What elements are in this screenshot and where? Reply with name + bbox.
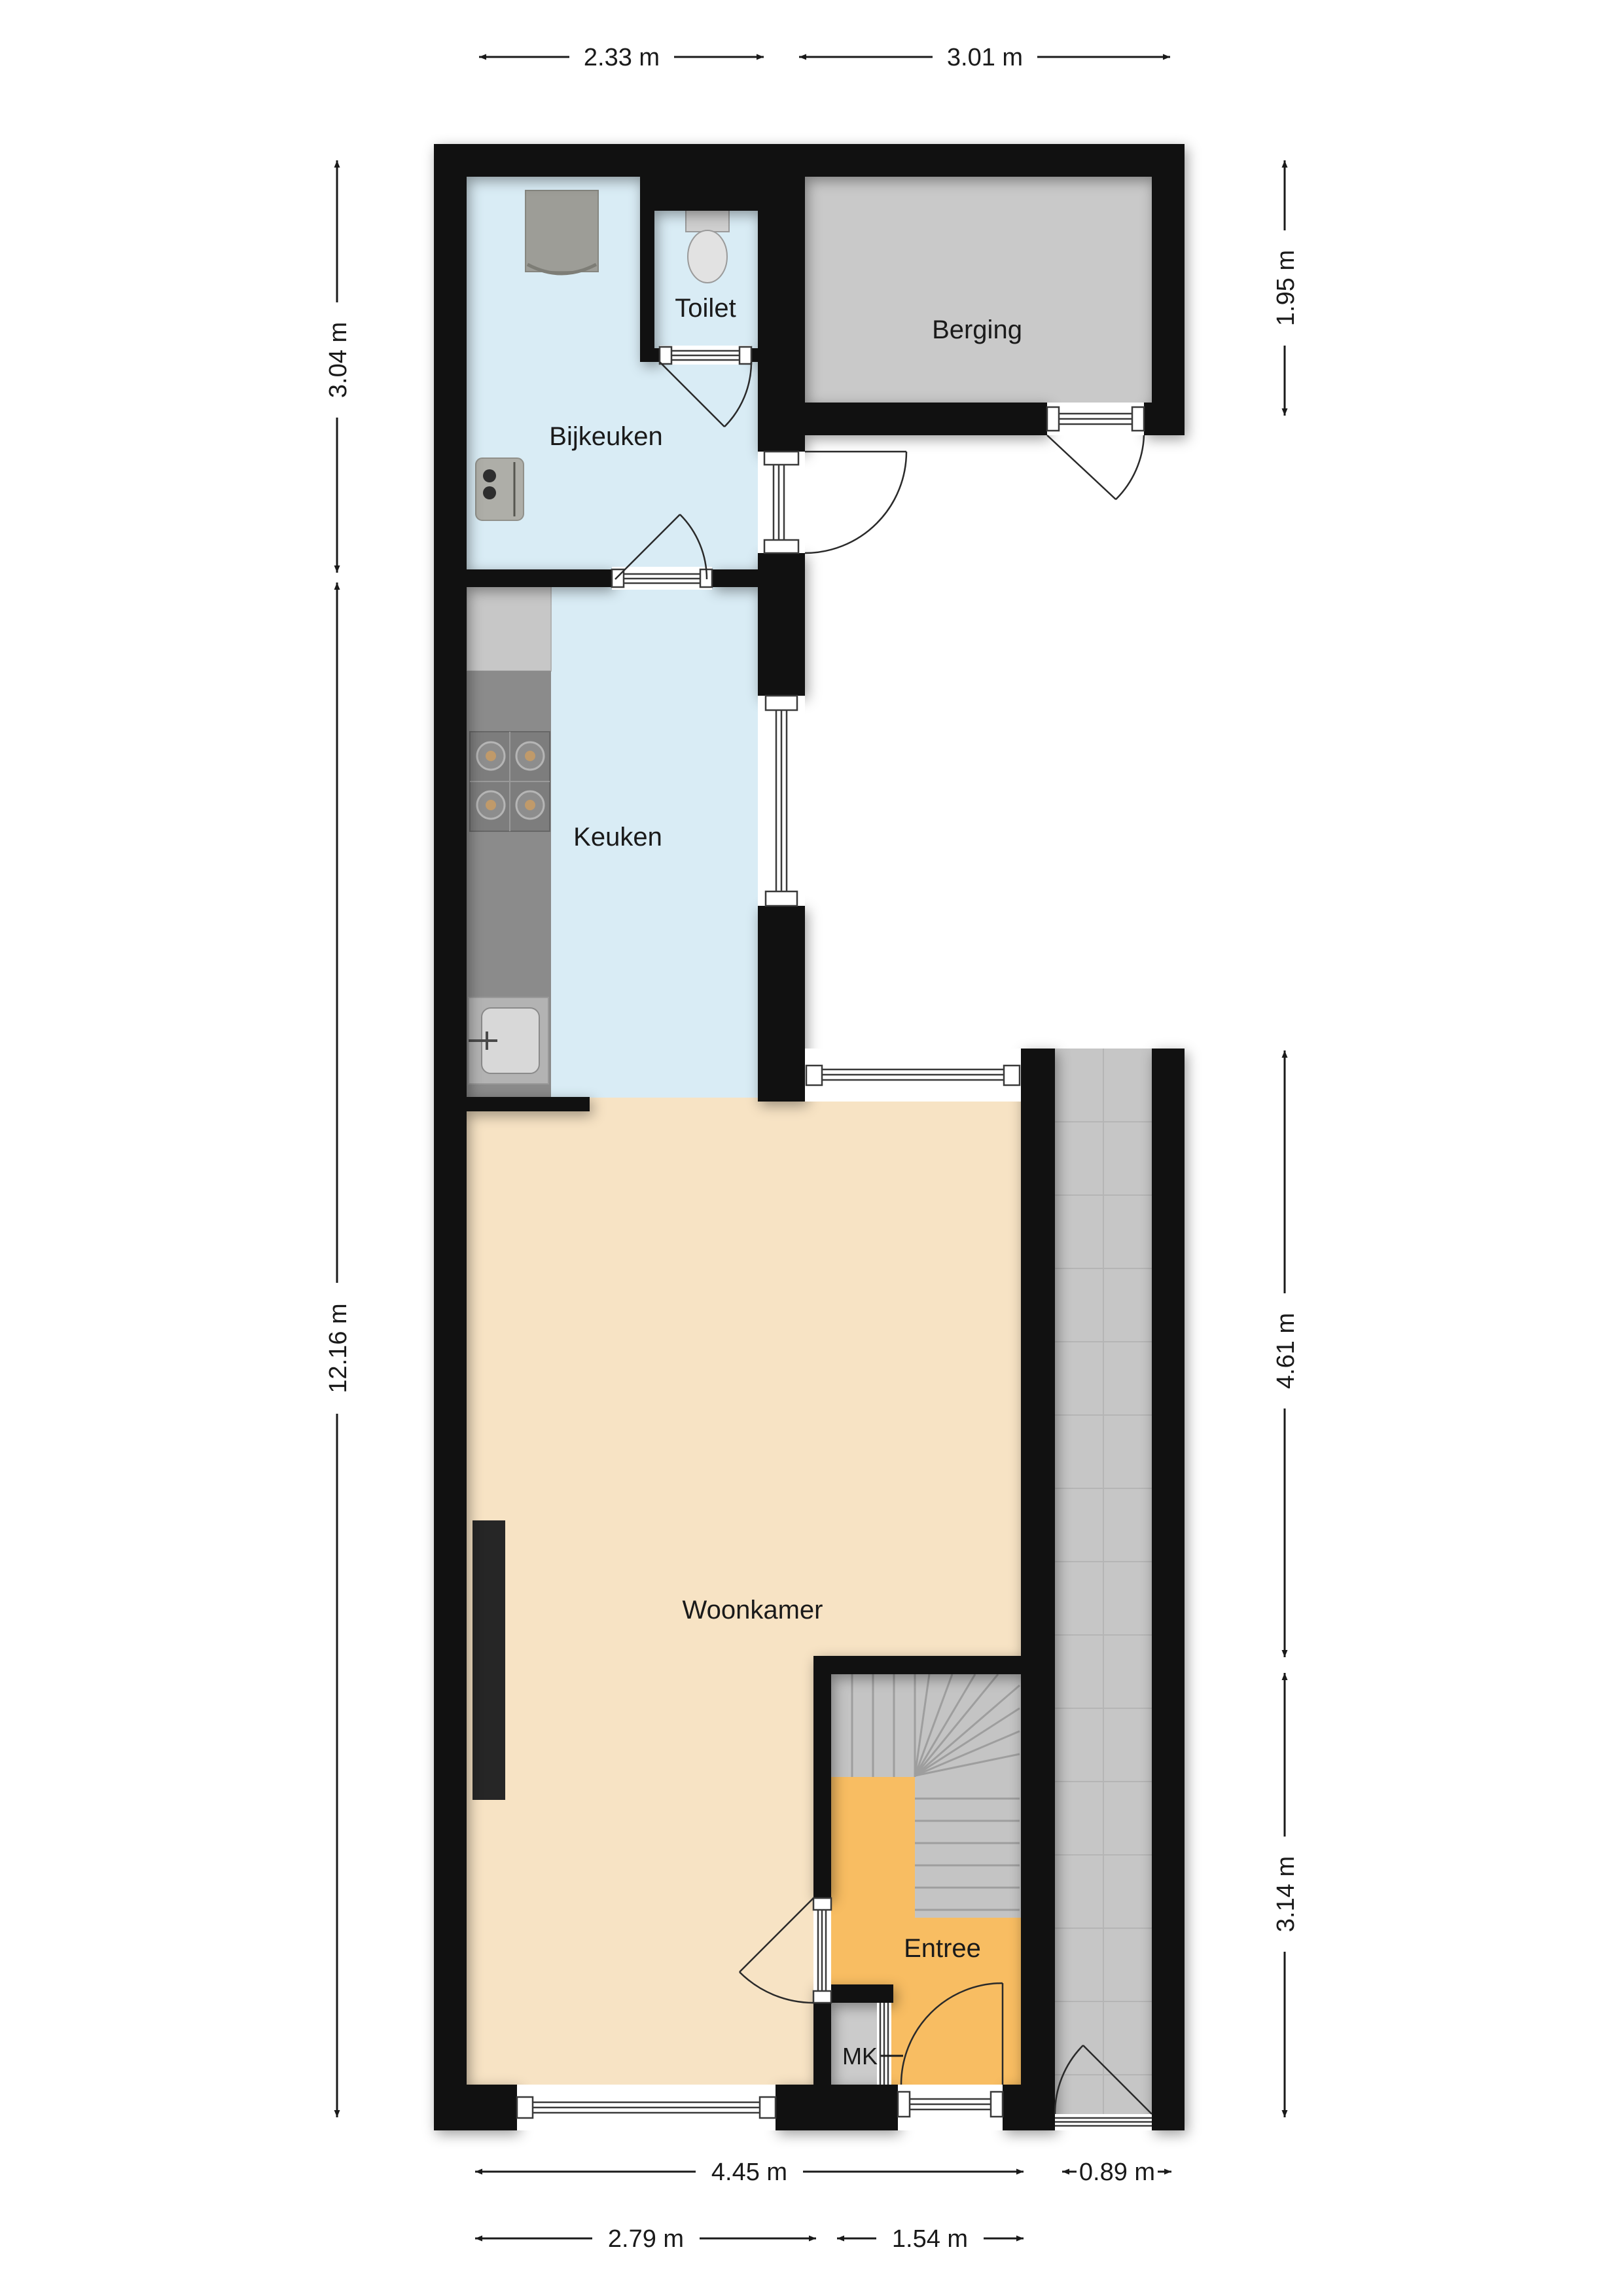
svg-text:3.14 m: 3.14 m	[1272, 1856, 1300, 1932]
wall-bijkeuken-keuken-a	[467, 569, 612, 587]
floor-plan: Bijkeuken Toilet Berging Keuken Woonkame…	[0, 0, 1623, 2296]
wall-mid-vertical-c	[758, 906, 805, 1102]
wall-bottom-a	[434, 2085, 517, 2130]
svg-text:4.61 m: 4.61 m	[1272, 1313, 1300, 1389]
berging-door-arc	[1047, 435, 1144, 499]
dim-bottom-4-45: 4.45 m	[475, 2159, 1024, 2186]
dim-bottom-0-89: 0.89 m	[1062, 2159, 1171, 2186]
wall-keuken-stub	[467, 1097, 590, 1111]
wall-mid-vertical-b	[758, 553, 805, 696]
back-door	[758, 452, 906, 553]
room-woonkamer-label: Woonkamer	[683, 1596, 823, 1624]
svg-text:0.89 m: 0.89 m	[1079, 2159, 1155, 2186]
wall-berging-right	[1152, 144, 1185, 435]
mk-door	[877, 2003, 891, 2085]
wall-left	[434, 144, 467, 2130]
kitchen-cabinet	[467, 584, 551, 671]
room-berging-floor	[805, 177, 1152, 403]
woonkamer-top-window	[805, 1049, 1021, 1102]
wall-toilet-bottom-b	[751, 348, 758, 362]
svg-text:3.04 m: 3.04 m	[325, 322, 352, 398]
svg-text:2.79 m: 2.79 m	[608, 2225, 684, 2253]
wall-toilet-partition	[640, 177, 654, 362]
berging-door	[1047, 403, 1144, 499]
wall-strip-right	[1152, 1049, 1185, 2130]
wall-toilet-bottom-a	[640, 348, 660, 362]
wall-bottom-c	[1003, 2085, 1055, 2130]
dim-bottom-1-54: 1.54 m	[837, 2225, 1024, 2253]
room-berging-label: Berging	[932, 315, 1022, 344]
room-keuken-label: Keuken	[573, 823, 662, 852]
boiler-icon	[476, 458, 524, 520]
stove-icon	[470, 732, 550, 831]
svg-text:2.33 m: 2.33 m	[584, 44, 660, 71]
room-mk-label: MK	[842, 2043, 878, 2070]
woonkamer-bottom-window	[517, 2085, 776, 2130]
back-door-arc	[805, 452, 906, 553]
svg-text:12.16 m: 12.16 m	[325, 1303, 352, 1393]
wall-mid-vertical-a	[758, 177, 805, 452]
toilet-icon	[686, 208, 729, 283]
dim-left-3-04: 3.04 m	[325, 160, 352, 573]
dim-left-12-16: 12.16 m	[325, 583, 352, 2117]
dim-top-bijkeuken: 2.33 m	[479, 44, 764, 71]
room-toilet-label: Toilet	[675, 294, 736, 323]
svg-text:1.95 m: 1.95 m	[1272, 250, 1300, 326]
washing-machine-icon	[526, 190, 598, 274]
room-bijkeuken-label: Bijkeuken	[549, 422, 662, 451]
dim-bottom-2-79: 2.79 m	[475, 2225, 816, 2253]
toilet-duct	[654, 177, 758, 211]
dim-top-berging: 3.01 m	[799, 44, 1170, 71]
wall-bijkeuken-keuken-b	[712, 569, 758, 587]
wall-woonkamer-right	[1021, 1049, 1055, 2130]
dim-right-4-61: 4.61 m	[1272, 1050, 1300, 1657]
wall-top	[434, 144, 1185, 177]
keuken-window	[758, 696, 805, 906]
sink-icon	[469, 997, 548, 1084]
svg-text:3.01 m: 3.01 m	[947, 44, 1023, 71]
wall-entree-left	[813, 1656, 831, 1898]
room-entree-label: Entree	[904, 1934, 981, 1963]
wall-entree-top	[813, 1656, 1021, 1674]
wall-mk-left	[813, 2003, 831, 2085]
wall-bottom-b	[776, 2085, 898, 2130]
svg-text:4.45 m: 4.45 m	[711, 2159, 787, 2186]
chimney-block	[473, 1520, 505, 1800]
dim-right-1-95: 1.95 m	[1272, 160, 1300, 416]
wall-berging-bottom-b	[1144, 403, 1185, 435]
svg-text:1.54 m: 1.54 m	[892, 2225, 968, 2253]
dim-right-3-14: 3.14 m	[1272, 1673, 1300, 2117]
